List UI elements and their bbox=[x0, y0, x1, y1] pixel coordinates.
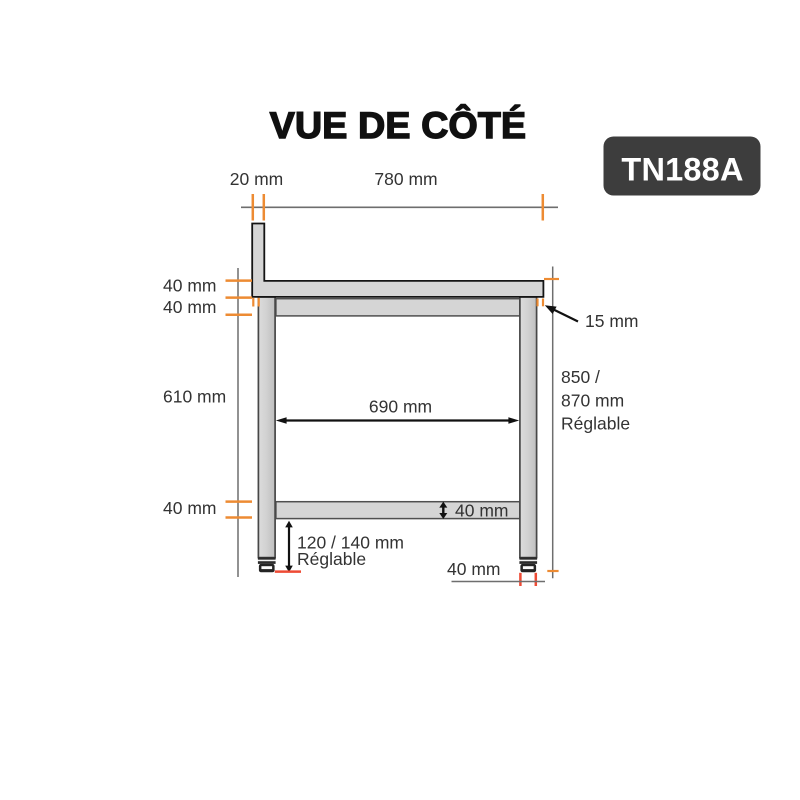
svg-text:690 mm: 690 mm bbox=[369, 396, 432, 416]
svg-text:40 mm: 40 mm bbox=[163, 276, 216, 296]
svg-text:40 mm: 40 mm bbox=[447, 559, 500, 579]
svg-text:40 mm: 40 mm bbox=[163, 297, 216, 317]
svg-text:40 mm: 40 mm bbox=[455, 501, 508, 521]
svg-text:850 /: 850 / bbox=[561, 367, 600, 387]
svg-text:Réglable: Réglable bbox=[297, 549, 366, 569]
svg-text:40 mm: 40 mm bbox=[163, 498, 216, 518]
svg-text:TN188A: TN188A bbox=[621, 152, 743, 188]
svg-text:15 mm: 15 mm bbox=[585, 311, 638, 331]
svg-text:780 mm: 780 mm bbox=[374, 169, 437, 189]
svg-text:20 mm: 20 mm bbox=[230, 169, 283, 189]
svg-text:VUE DE CÔTÉ: VUE DE CÔTÉ bbox=[270, 104, 526, 146]
svg-text:610 mm: 610 mm bbox=[163, 387, 226, 407]
svg-text:870 mm: 870 mm bbox=[561, 390, 624, 410]
svg-text:Réglable: Réglable bbox=[561, 413, 630, 433]
